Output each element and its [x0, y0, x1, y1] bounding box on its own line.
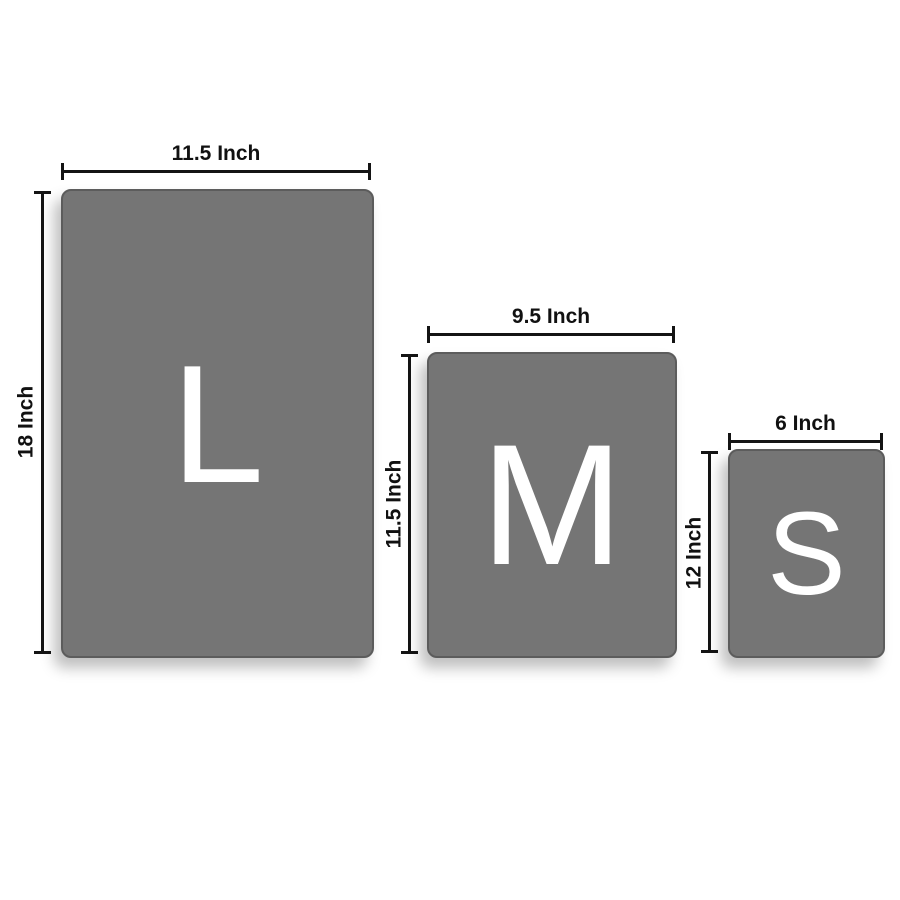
width-label-medium: 9.5 Inch [427, 305, 675, 329]
size-comparison-diagram: 11.5 Inch 18 Inch L 9.5 Inch 11.5 Inch M… [0, 0, 900, 900]
width-dimension-line-small [728, 440, 883, 443]
size-letter-large: L [171, 340, 264, 508]
size-letter-medium: M [480, 419, 623, 591]
width-label-large: 11.5 Inch [61, 142, 371, 166]
width-dimension-line-medium [427, 333, 675, 336]
height-label-small: 12 Inch [684, 517, 705, 589]
height-label-medium: 11.5 Inch [384, 460, 405, 549]
height-label-large: 18 Inch [16, 386, 37, 458]
size-card-small: S [728, 449, 885, 658]
size-card-large: L [61, 189, 374, 658]
height-dimension-line-small [708, 451, 711, 653]
width-dimension-line-large [61, 170, 371, 173]
height-dimension-line-large [41, 191, 44, 654]
size-letter-small: S [767, 495, 846, 613]
height-dimension-line-medium [408, 354, 411, 654]
size-card-medium: M [427, 352, 677, 658]
width-label-small: 6 Inch [728, 412, 883, 436]
